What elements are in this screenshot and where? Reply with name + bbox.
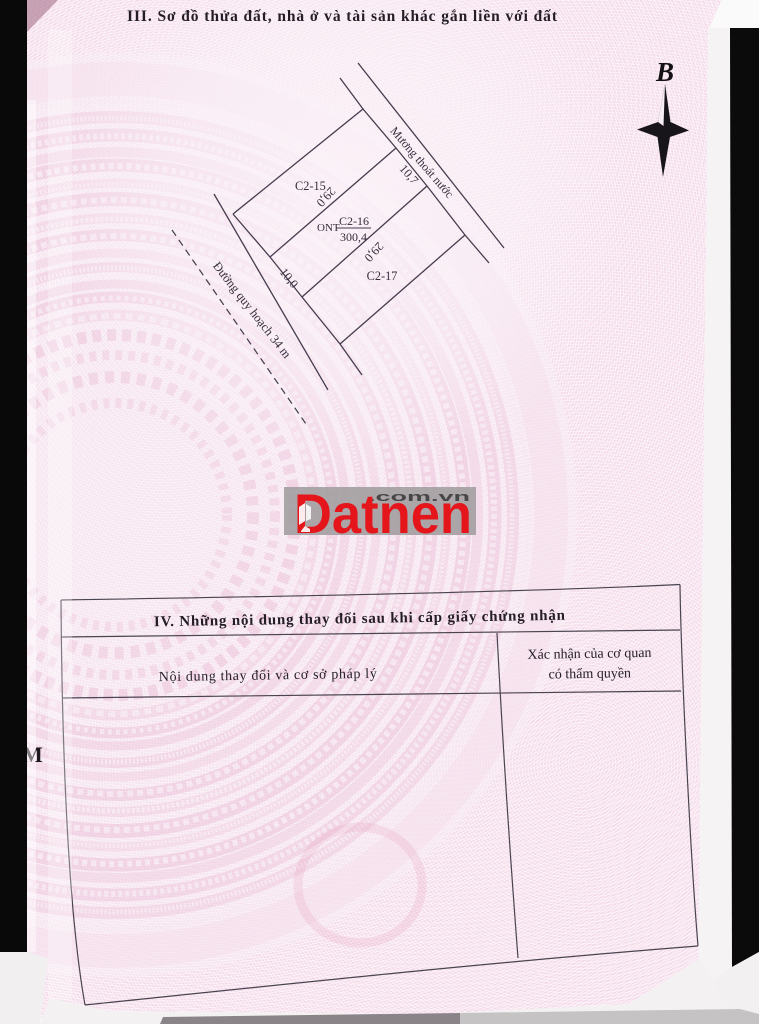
svg-text:C2-16: C2-16 bbox=[339, 214, 369, 228]
svg-text:B: B bbox=[655, 57, 674, 87]
svg-text:Xác nhận của cơ quan: Xác nhận của cơ quan bbox=[527, 646, 651, 663]
svg-text:III. Sơ đồ thửa đất, nhà ở và: III. Sơ đồ thửa đất, nhà ở và tài sản kh… bbox=[127, 8, 558, 25]
svg-text:có thẩm quyền: có thẩm quyền bbox=[548, 666, 631, 682]
svg-text:Datnen: Datnen bbox=[294, 482, 472, 545]
svg-text:ONT: ONT bbox=[317, 222, 340, 234]
svg-text:C2-15: C2-15 bbox=[295, 179, 326, 193]
svg-text:300,4: 300,4 bbox=[340, 230, 367, 244]
svg-text:C2-17: C2-17 bbox=[367, 269, 398, 283]
